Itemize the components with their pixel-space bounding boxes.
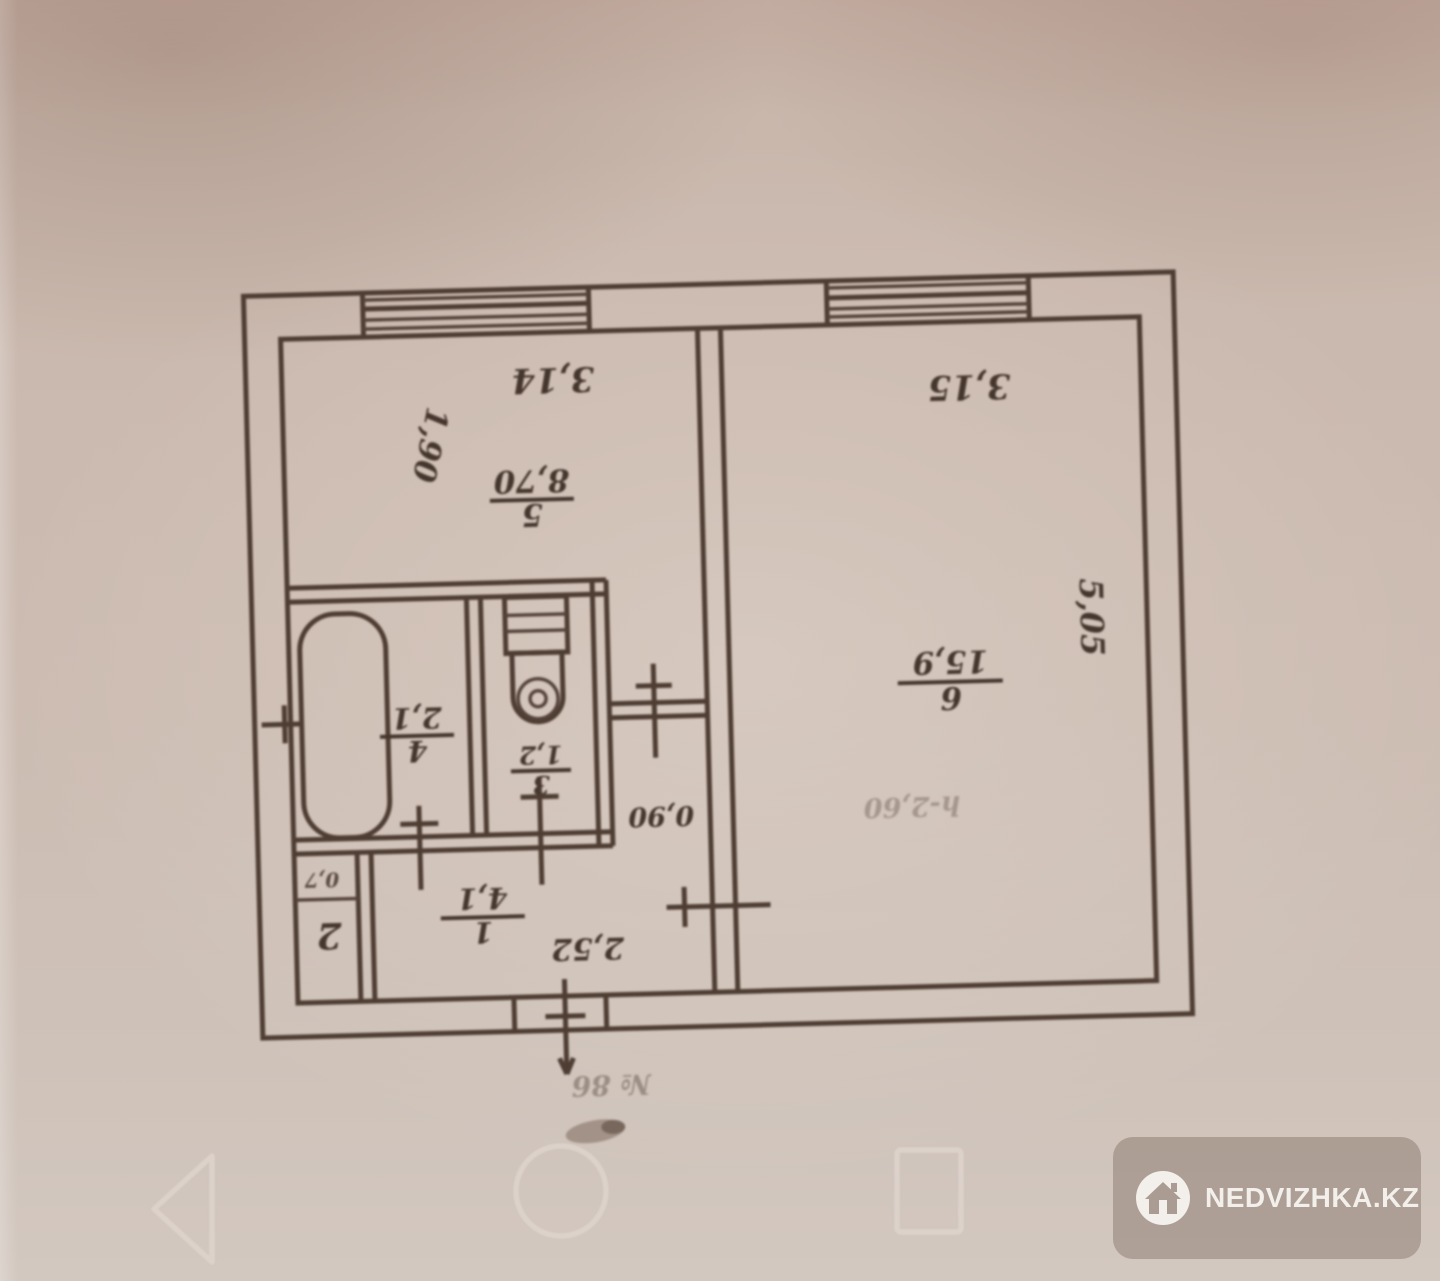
svg-text:4,1: 4,1 [457,881,508,916]
dim-living-width: 3,15 [927,365,1011,407]
watermark-chip: NEDVIZHKA.KZ [1113,1137,1421,1259]
dim-door-width: 0,90 [628,799,695,832]
svg-text:2,1: 2,1 [391,700,443,735]
screenshot-root: 3,14 3,15 1,90 5,05 2,52 0,90 h-2,60 5 8… [0,0,1440,1281]
recents-square-icon [897,1150,961,1232]
svg-text:6: 6 [940,679,963,716]
left-wall-mark [261,705,304,744]
back-button[interactable] [140,1145,230,1275]
note-ceiling-height: h-2,60 [863,789,961,823]
bathroom-door-mark [400,805,440,890]
toilet [504,596,569,723]
recents-button[interactable] [889,1142,971,1240]
home-circle-icon [516,1146,606,1236]
room-label-hall: 1 4,1 [440,880,526,950]
interior-walls [281,328,738,1003]
window-living [826,276,1029,325]
living-door-mark [666,885,771,928]
back-triangle-icon [154,1156,212,1262]
svg-text:1,2: 1,2 [518,740,562,770]
room-label-living: 6 15,9 [897,642,1004,717]
svg-text:0,7: 0,7 [304,867,339,892]
svg-text:4: 4 [407,734,428,769]
svg-text:1: 1 [473,915,494,950]
room-label-kitchen: 5 8,70 [489,461,575,533]
floor-plan: 3,14 3,15 1,90 5,05 2,52 0,90 h-2,60 5 8… [0,0,1440,1281]
dim-hall-width: 2,52 [551,930,626,967]
svg-text:8,70: 8,70 [493,461,571,499]
svg-text:3: 3 [532,770,550,799]
watermark-text: NEDVIZHKA.KZ [1205,1182,1419,1214]
svg-text:2: 2 [316,914,343,957]
kitchen-door-mark [635,663,673,758]
svg-text:15,9: 15,9 [912,642,988,680]
dim-kitchen-width: 3,14 [511,358,595,400]
bathtub [299,613,391,839]
entrance-door-mark [513,978,607,1075]
home-button[interactable] [508,1138,614,1244]
room-label-toilet: 3 1,2 [510,739,572,800]
dim-living-depth: 5,05 [1072,578,1112,657]
note-bottom-number: № 86 [571,1067,652,1102]
room-label-closet: 0,7 2 [304,867,343,956]
house-icon [1135,1170,1191,1226]
dim-kitchen-depth: 1,90 [405,404,455,486]
plan-rotation-group: 3,14 3,15 1,90 5,05 2,52 0,90 h-2,60 5 8… [243,272,1195,1155]
